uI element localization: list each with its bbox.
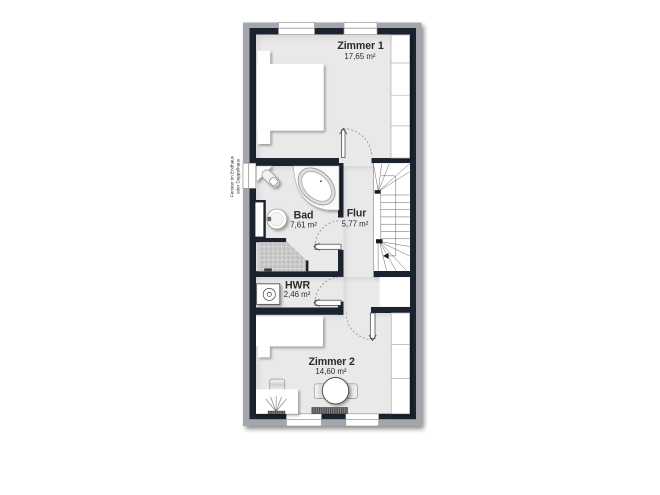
svg-text:Zimmer 2: Zimmer 2 — [309, 356, 356, 368]
svg-text:oder Doppelhaus: oder Doppelhaus — [235, 158, 240, 194]
svg-text:Fenster im Endhaus: Fenster im Endhaus — [230, 155, 235, 197]
svg-text:2,46 m²: 2,46 m² — [284, 290, 311, 299]
svg-text:5,77 m²: 5,77 m² — [342, 219, 369, 228]
svg-text:7,61 m²: 7,61 m² — [290, 221, 317, 230]
svg-text:17,65 m²: 17,65 m² — [344, 52, 376, 61]
svg-text:Zimmer 1: Zimmer 1 — [337, 40, 384, 52]
svg-text:Flur: Flur — [347, 207, 367, 219]
svg-text:14,60 m²: 14,60 m² — [315, 367, 347, 376]
